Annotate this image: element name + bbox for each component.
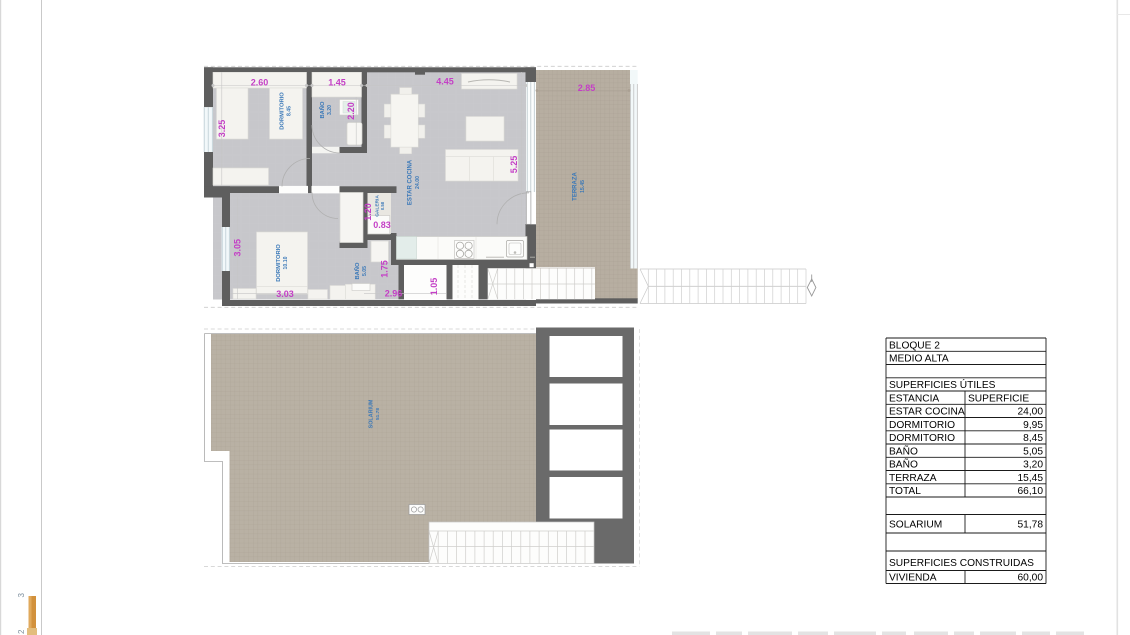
svg-text:SOLARIUM: SOLARIUM xyxy=(369,399,375,428)
svg-text:8,45: 8,45 xyxy=(1023,433,1043,444)
svg-text:TOTAL: TOTAL xyxy=(889,486,921,497)
svg-text:66,10: 66,10 xyxy=(1018,486,1044,497)
svg-text:3.05: 3.05 xyxy=(233,239,243,257)
svg-text:2.20: 2.20 xyxy=(346,102,356,120)
svg-text:51.78: 51.78 xyxy=(375,408,381,420)
svg-text:15,45: 15,45 xyxy=(1018,473,1044,484)
svg-text:3.03: 3.03 xyxy=(276,289,294,299)
svg-text:BAÑO: BAÑO xyxy=(354,262,361,280)
svg-text:2.96: 2.96 xyxy=(385,289,403,299)
svg-text:BAÑO: BAÑO xyxy=(319,101,326,119)
svg-text:0.58: 0.58 xyxy=(380,201,385,210)
svg-text:BLOQUE 2: BLOQUE 2 xyxy=(889,340,940,351)
svg-text:3,20: 3,20 xyxy=(1023,460,1043,471)
svg-text:DORMITORIO: DORMITORIO xyxy=(276,244,282,282)
svg-text:BAÑO: BAÑO xyxy=(889,444,918,457)
svg-text:SUPERFICIES CONSTRUIDAS: SUPERFICIES CONSTRUIDAS xyxy=(889,558,1034,569)
svg-text:5,05: 5,05 xyxy=(1023,446,1043,457)
svg-text:2.60: 2.60 xyxy=(251,77,269,87)
svg-text:5.05: 5.05 xyxy=(362,266,368,276)
svg-text:2: 2 xyxy=(17,629,26,634)
svg-text:SUPERFICIES ÚTILES: SUPERFICIES ÚTILES xyxy=(889,378,996,391)
svg-text:1.75: 1.75 xyxy=(380,260,390,278)
svg-text:DORMITORIO: DORMITORIO xyxy=(889,433,955,444)
svg-text:24,00: 24,00 xyxy=(1018,407,1044,418)
svg-text:60,00: 60,00 xyxy=(1018,573,1044,584)
svg-text:2.85: 2.85 xyxy=(578,83,596,93)
svg-text:3.25: 3.25 xyxy=(217,120,227,138)
svg-text:DORMITORIO: DORMITORIO xyxy=(280,92,286,130)
svg-text:BAÑO: BAÑO xyxy=(889,458,918,471)
svg-text:DORMITORIO: DORMITORIO xyxy=(889,420,955,431)
svg-text:ESTANCIA: ESTANCIA xyxy=(889,393,939,404)
svg-text:5.25: 5.25 xyxy=(509,156,519,174)
svg-text:ESTAR COCINA: ESTAR COCINA xyxy=(889,407,965,418)
svg-text:VIVIENDA: VIVIENDA xyxy=(889,573,937,584)
svg-text:SOLARIUM: SOLARIUM xyxy=(889,520,942,531)
svg-text:8.45: 8.45 xyxy=(287,106,293,116)
svg-text:1.05: 1.05 xyxy=(429,278,439,296)
svg-text:TERRAZA: TERRAZA xyxy=(573,172,579,201)
svg-text:TERRAZA: TERRAZA xyxy=(889,473,937,484)
svg-text:24.00: 24.00 xyxy=(415,176,421,189)
svg-text:1.45: 1.45 xyxy=(328,77,346,87)
svg-text:10.10: 10.10 xyxy=(283,256,289,269)
svg-text:MEDIO ALTA: MEDIO ALTA xyxy=(889,354,949,365)
svg-text:15.45: 15.45 xyxy=(580,180,586,193)
svg-text:1.20: 1.20 xyxy=(363,203,373,221)
svg-text:4.45: 4.45 xyxy=(436,77,454,87)
svg-text:9,95: 9,95 xyxy=(1023,420,1043,431)
svg-text:ESTAR COCINA: ESTAR COCINA xyxy=(408,159,414,205)
svg-text:51,78: 51,78 xyxy=(1018,520,1044,531)
svg-text:3.20: 3.20 xyxy=(327,105,333,115)
svg-text:0.83: 0.83 xyxy=(373,220,391,230)
svg-text:3: 3 xyxy=(17,593,26,598)
svg-text:SUPERFICIE: SUPERFICIE xyxy=(968,393,1029,404)
